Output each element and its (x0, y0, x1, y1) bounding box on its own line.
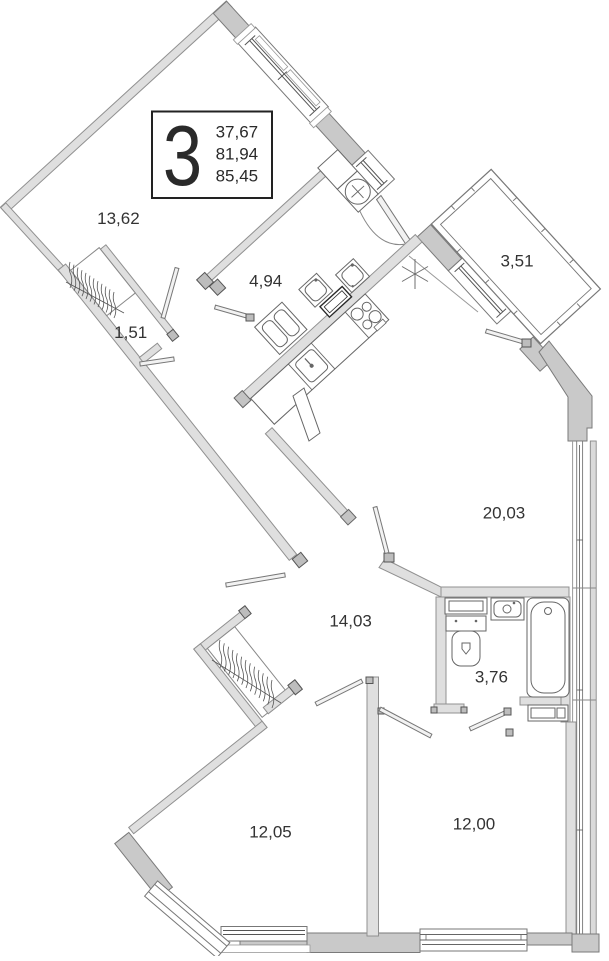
svg-text:3,76: 3,76 (475, 668, 508, 687)
svg-text:14,03: 14,03 (329, 611, 372, 630)
svg-text:20,03: 20,03 (483, 504, 526, 523)
svg-text:4,94: 4,94 (249, 272, 282, 291)
svg-text:12,00: 12,00 (453, 815, 496, 834)
svg-text:13,62: 13,62 (97, 209, 140, 228)
svg-text:1,51: 1,51 (114, 323, 147, 342)
svg-text:85,45: 85,45 (216, 167, 259, 186)
svg-text:12,05: 12,05 (249, 822, 292, 841)
svg-text:3,51: 3,51 (500, 252, 533, 271)
svg-text:37,67: 37,67 (216, 123, 259, 142)
svg-text:81,94: 81,94 (216, 145, 259, 164)
svg-text:3: 3 (163, 108, 202, 204)
